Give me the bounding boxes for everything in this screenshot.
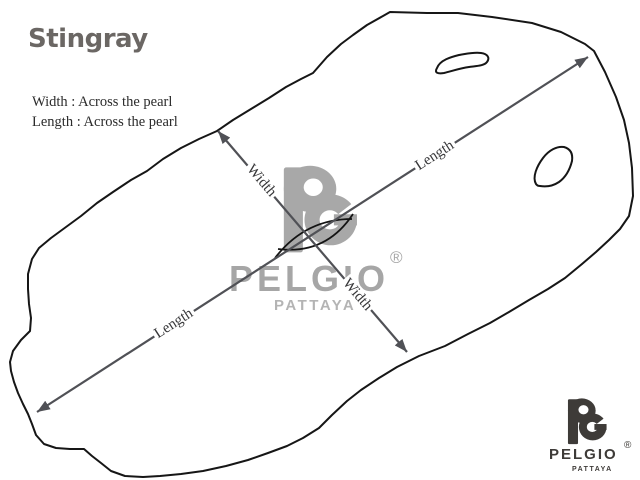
logo-city-text: PATTAYA [572, 466, 613, 473]
brand-logo: PELGIO ® PATTAYA [0, 0, 640, 480]
logo-brand-text: PELGIO [549, 446, 618, 463]
logo-registered-icon: ® [624, 440, 631, 451]
pelgio-monogram-icon [564, 398, 608, 445]
diagram-canvas: PELGIO ® PATTAYA Width Width Length Leng… [0, 0, 640, 480]
